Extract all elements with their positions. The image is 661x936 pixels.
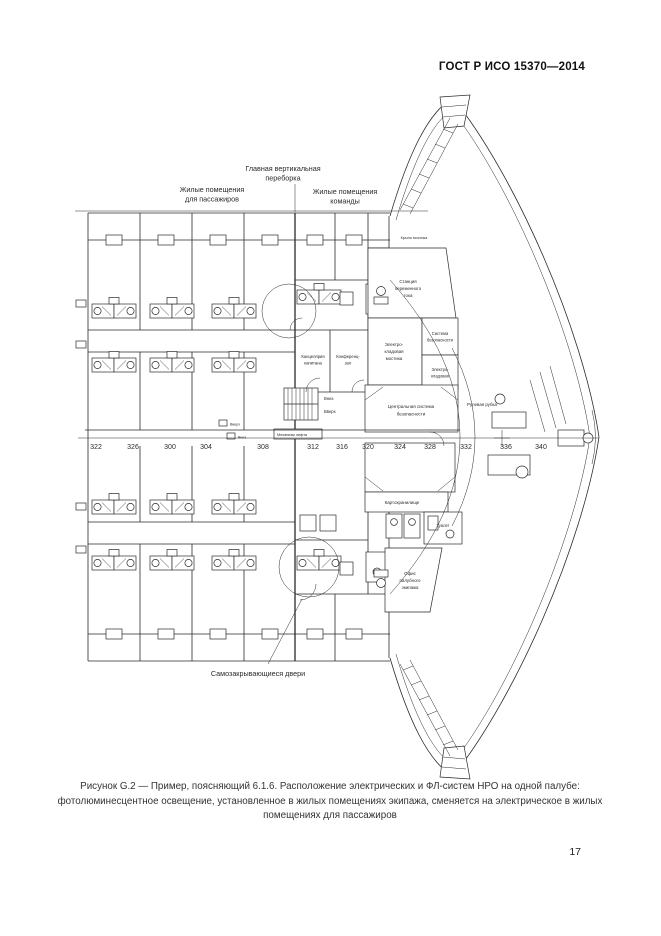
label-crew-quarters-2: команды	[330, 197, 360, 206]
centerline-frames: 322 326 300 304 308 312 316 320 324 328 …	[78, 430, 599, 451]
frame-number: 320	[362, 444, 374, 451]
label-lift: Механизм лифта	[277, 433, 308, 437]
top-annotations: Главная вертикальная переборка Жилые пом…	[75, 164, 428, 212]
label-stairs-down: Вниз	[324, 396, 333, 401]
frame-number: 326	[127, 444, 139, 451]
frame-number: 340	[535, 444, 547, 451]
label-main-bulkhead: Главная вертикальная	[245, 164, 320, 173]
label-conference: Конференц-	[336, 354, 360, 359]
frame-number: 324	[394, 444, 406, 451]
label-chart-room: Картохранилище	[385, 500, 420, 505]
label-conference-2: зал	[345, 361, 352, 366]
frame-number: 312	[307, 444, 319, 451]
crew-rooms: Канцелярия капитана Конференц- зал Вниз …	[219, 280, 390, 600]
label-security-system-2: безопасности	[427, 338, 453, 343]
frame-number: 304	[200, 444, 212, 451]
frame-number: 308	[257, 444, 269, 451]
staircase	[284, 388, 318, 420]
label-small-up: Вверх	[230, 423, 240, 427]
label-main-bulkhead-2: переборка	[265, 174, 300, 183]
label-ac-station: Станция	[399, 279, 417, 284]
frame-number: 332	[460, 444, 472, 451]
label-ac-station-3: тока	[404, 293, 413, 298]
frame-number: 328	[424, 444, 436, 451]
figure-caption: Рисунок G.2 — Пример, поясняющий 6.1.6. …	[40, 780, 620, 824]
label-bridge-elec-store-3: мостика	[386, 356, 403, 361]
label-bridge-elec-store-2: кладовая	[384, 349, 404, 354]
label-elec-store-2: кладовая	[431, 374, 449, 379]
label-small-down: Вниз	[238, 436, 246, 440]
label-self-closing-doors: Самозакрывающиеся двери	[211, 669, 305, 678]
frame-number: 300	[164, 444, 176, 451]
document-page: ГОСТ Р ИСО 15370—2014 Главная вертикальн…	[0, 0, 661, 936]
label-central-security-2: безопасности	[397, 412, 426, 417]
label-crew-quarters: Жилые помещения	[313, 187, 378, 196]
cabin-beds	[92, 284, 388, 583]
label-stairs-up: Вверх	[324, 409, 337, 414]
hull-outline: Рулевая рубка	[374, 95, 599, 779]
steering-gear: Рулевая рубка	[467, 366, 595, 478]
label-bridge-elec-store: Электро-	[385, 342, 404, 347]
hull-ladder-bottom	[400, 660, 458, 756]
label-security-system: Система	[432, 331, 449, 336]
label-passenger-quarters: Жилые помещения	[180, 185, 245, 194]
label-central-security: Центральная система	[388, 404, 435, 409]
frame-number: 316	[336, 444, 348, 451]
label-passenger-quarters-2: для пассажиров	[185, 195, 239, 204]
label-wheelhouse: Рулевая рубка	[467, 402, 498, 407]
hull-ladder-top	[400, 118, 458, 214]
label-captain-office-2: капитана	[304, 361, 322, 366]
page-number: 17	[569, 846, 581, 858]
label-bridge-wing: Крыло мостика	[401, 236, 429, 240]
label-captain-office: Канцелярия	[301, 354, 324, 359]
label-deck-office-3: экипажа	[402, 585, 419, 590]
technical-rooms: Станция переменного тока Электро- кладов…	[365, 216, 462, 658]
frame-number: 336	[500, 444, 512, 451]
frame-number: 322	[90, 444, 102, 451]
